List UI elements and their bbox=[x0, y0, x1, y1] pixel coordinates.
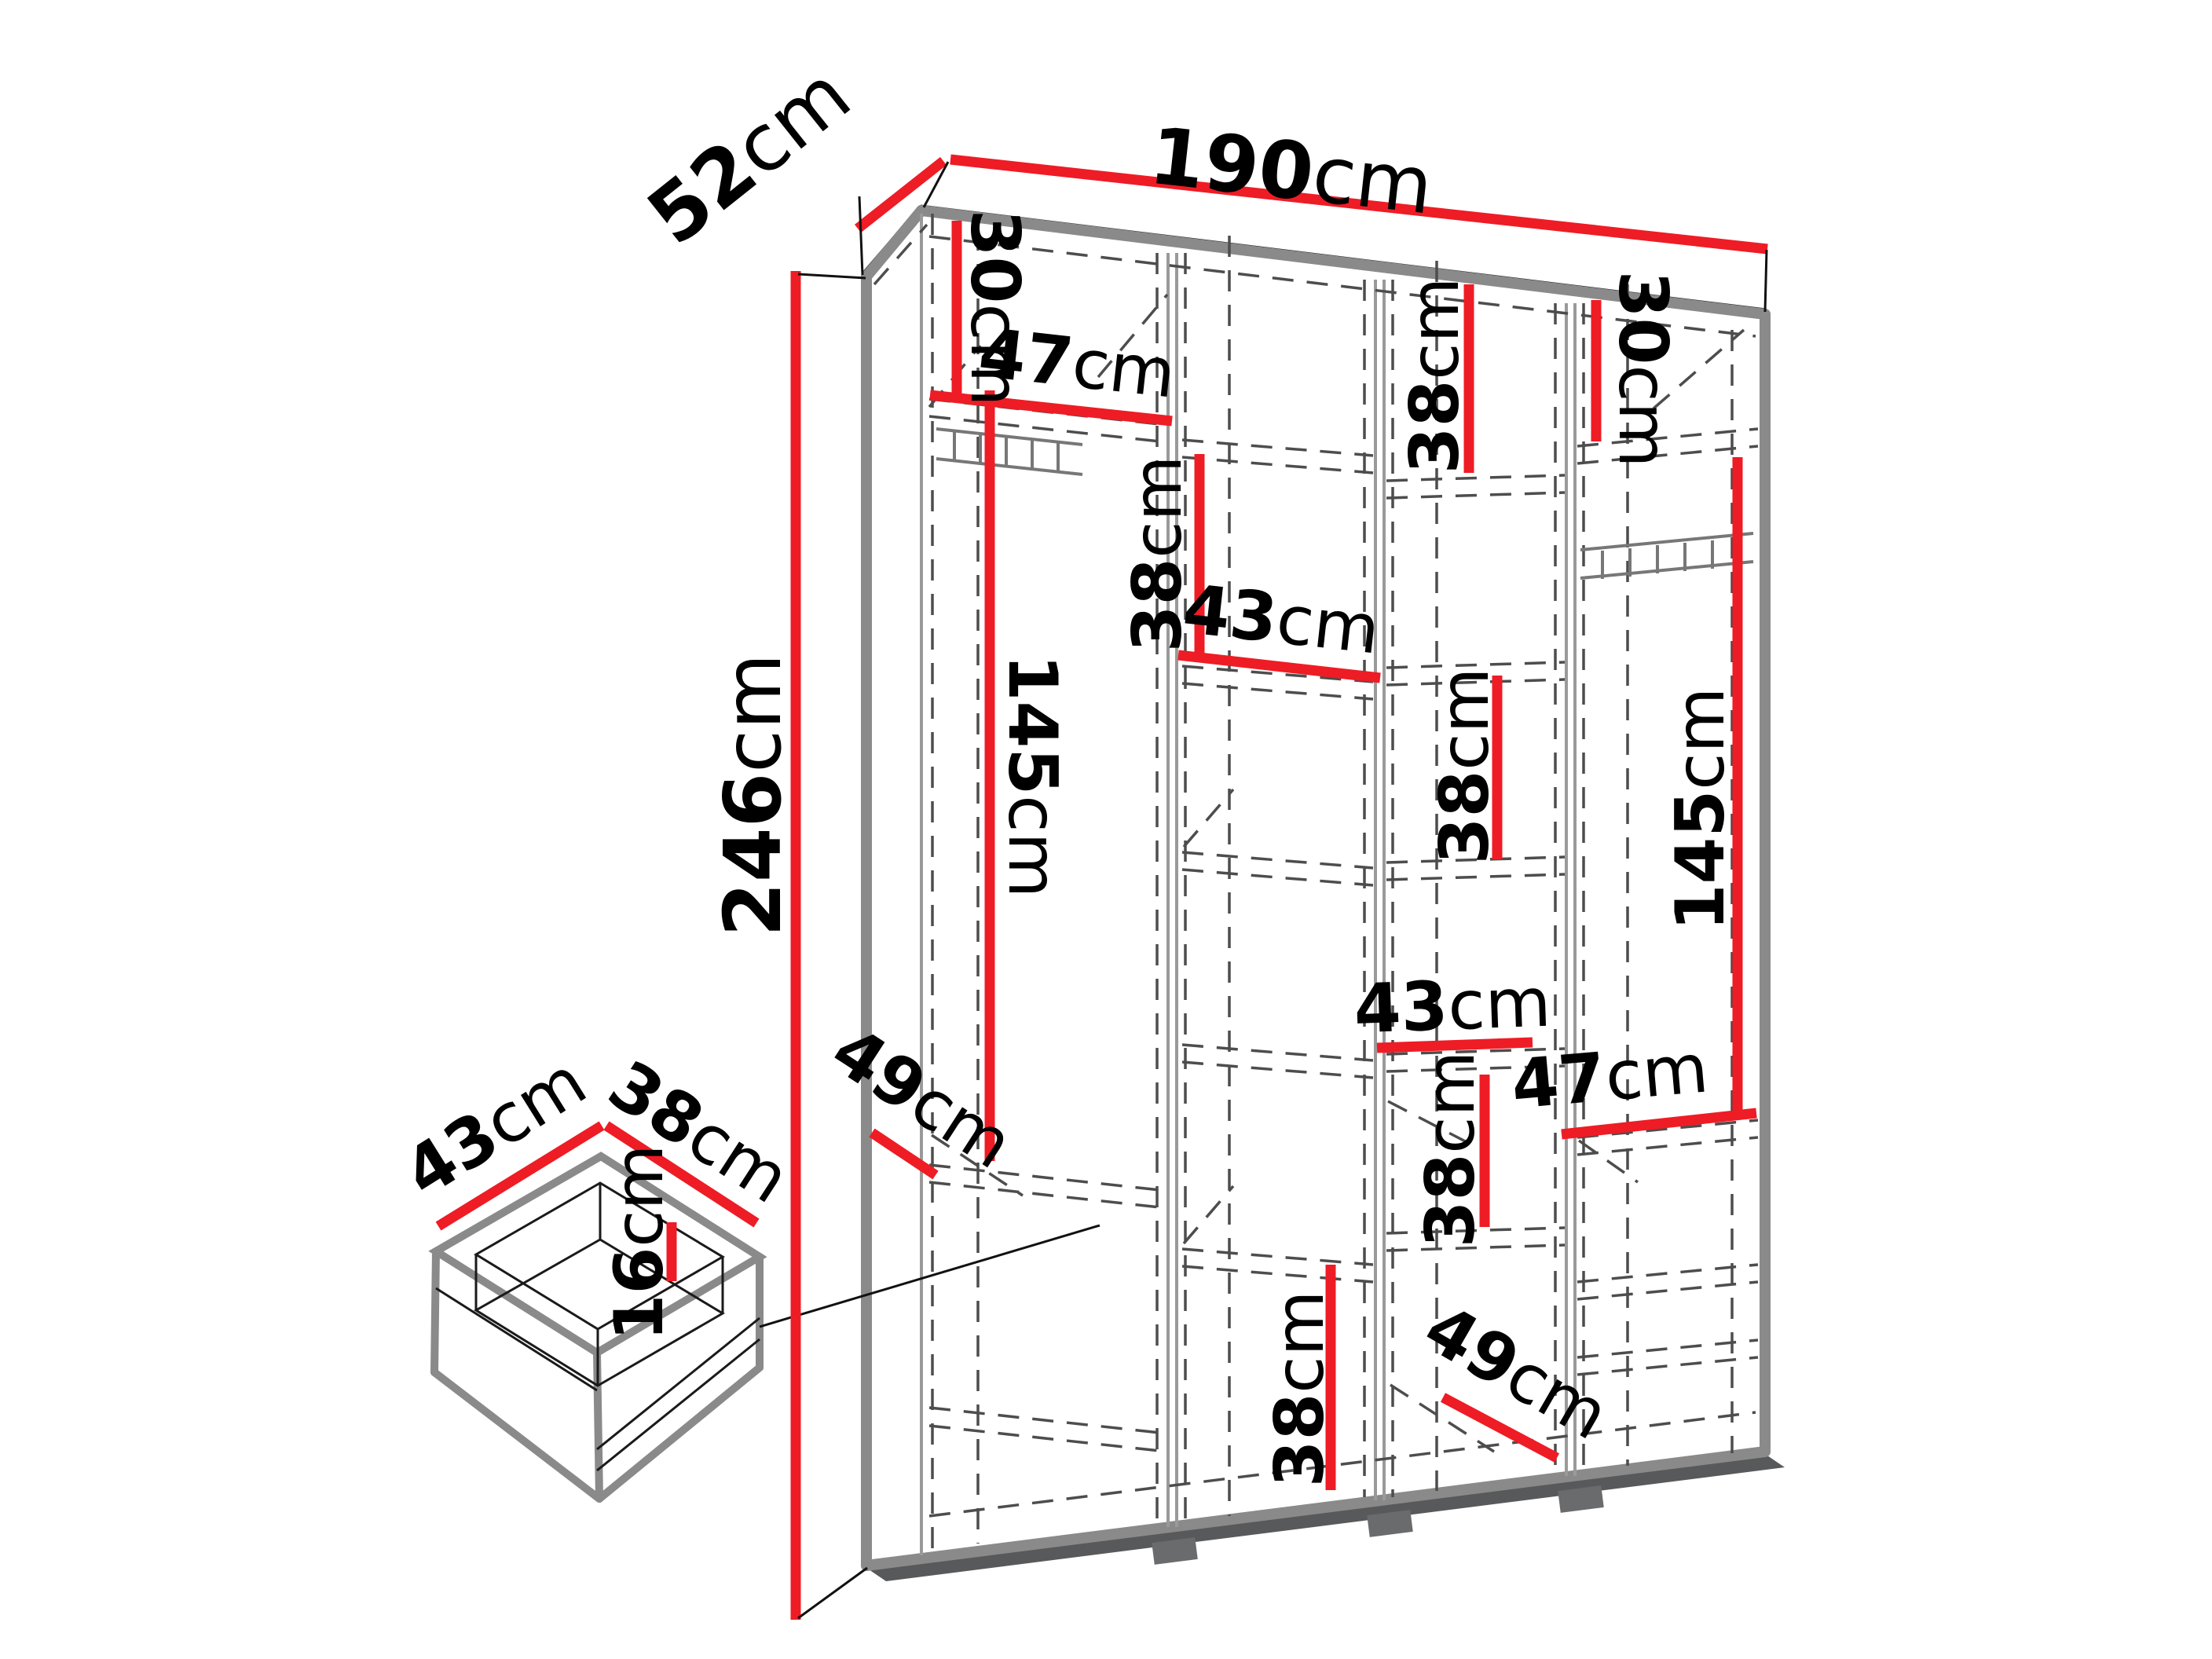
label-col4-top-height: 30cm bbox=[1603, 271, 1682, 468]
dimension-labels: 190cm 52cm 246cm 30cm 47cm 145cm 38cm 43… bbox=[391, 48, 1740, 1487]
label-col4-shelf-width: 47cm bbox=[1508, 1029, 1712, 1124]
label-overall-height: 246cm bbox=[707, 653, 799, 936]
drawer-pointer-line bbox=[760, 1225, 1100, 1327]
drawer-detail bbox=[434, 1156, 760, 1499]
label-col3-bottom-depth: 49cm bbox=[1412, 1289, 1621, 1456]
label-overall-width: 190cm bbox=[1145, 110, 1437, 233]
label-drawer-height: 16cm bbox=[600, 1144, 679, 1342]
hanging-rod-right-icon bbox=[1580, 533, 1753, 579]
label-col3-lower-section: 38cm bbox=[1412, 1051, 1490, 1248]
label-col2-bottom-section: 38cm bbox=[1261, 1291, 1339, 1488]
label-col4-hanging-height: 145cm bbox=[1661, 687, 1740, 932]
wardrobe-dimension-diagram: 190cm 52cm 246cm 30cm 47cm 145cm 38cm 43… bbox=[0, 0, 2212, 1659]
hanging-rod-left-icon bbox=[936, 429, 1082, 474]
label-col3-middle-section: 38cm bbox=[1426, 668, 1504, 865]
label-col3-top-section: 38cm bbox=[1396, 277, 1474, 474]
label-col3-shelf-width: 43cm bbox=[1353, 964, 1552, 1049]
label-overall-depth: 52cm bbox=[631, 48, 867, 262]
label-col1-hanging-height: 145cm bbox=[993, 654, 1071, 899]
